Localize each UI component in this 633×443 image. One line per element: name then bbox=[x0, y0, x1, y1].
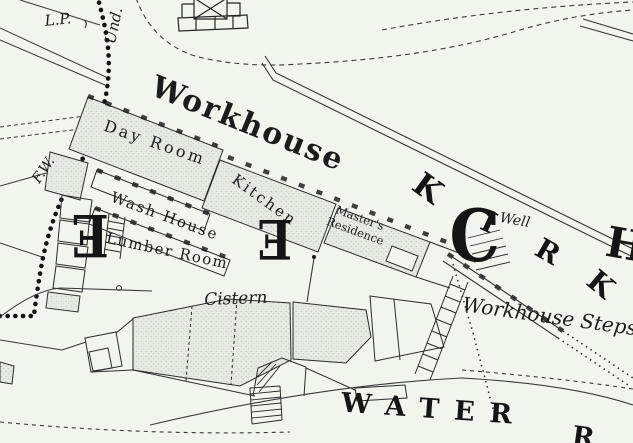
screenshot: L.P. Und. F.W. Workhouse Day Room Kitche… bbox=[0, 0, 633, 443]
street-letter-r-partial: R bbox=[570, 423, 596, 443]
label-cistern: Cistern bbox=[204, 290, 268, 309]
historic-map-canvas: L.P. Und. F.W. Workhouse Day Room Kitche… bbox=[0, 0, 633, 443]
field-boundary-curves bbox=[136, 0, 633, 65]
block-letter-e-west: E bbox=[71, 206, 109, 264]
block-letter-c: C bbox=[449, 200, 499, 272]
block-letter-e-centre: E bbox=[257, 212, 292, 266]
monument-footprint bbox=[178, 0, 248, 31]
label-lamp-post: L.P. bbox=[44, 11, 72, 29]
south-outbuildings bbox=[0, 255, 444, 401]
